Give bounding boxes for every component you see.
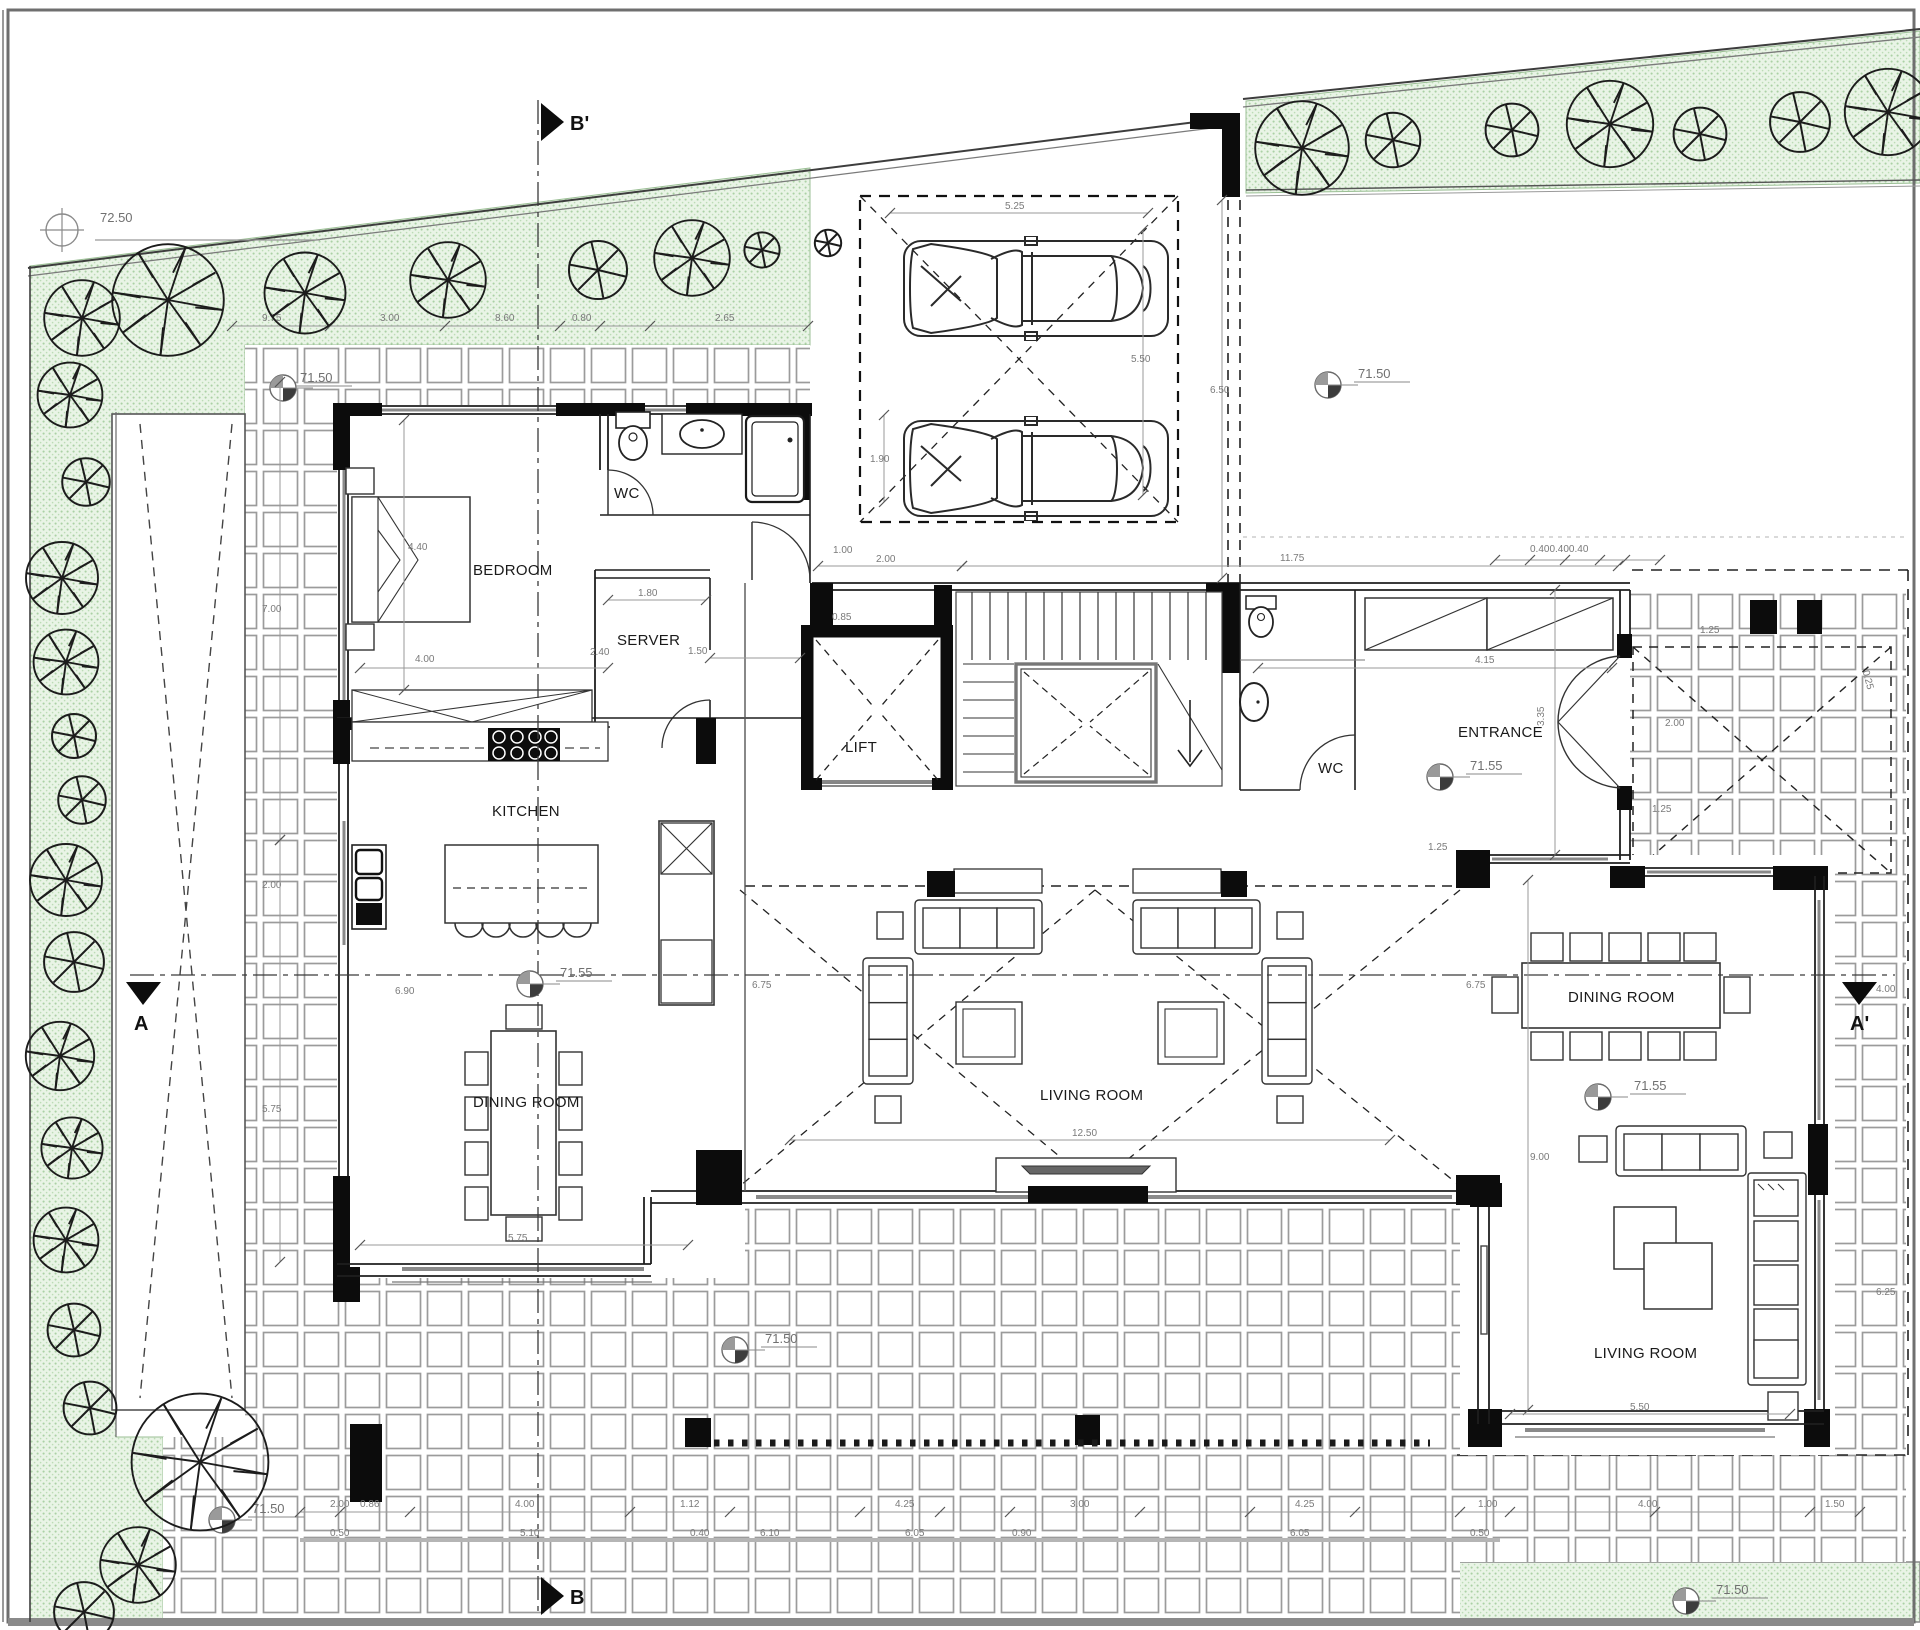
svg-text:1.25: 1.25 [1428,842,1448,853]
svg-text:0.90: 0.90 [1012,1528,1032,1539]
svg-text:BEDROOM: BEDROOM [473,562,553,579]
svg-text:A: A [134,1013,148,1035]
svg-text:12.50: 12.50 [1072,1128,1097,1139]
svg-text:WC: WC [1318,760,1344,777]
svg-text:4.25: 4.25 [1295,1499,1315,1510]
svg-text:1.25: 1.25 [1700,625,1720,636]
svg-text:0.86: 0.86 [360,1499,380,1510]
svg-text:71.50: 71.50 [300,370,333,385]
svg-text:6.90: 6.90 [395,986,415,997]
svg-text:0.85: 0.85 [832,612,852,623]
svg-text:7.00: 7.00 [262,604,282,615]
svg-text:2.65: 2.65 [715,313,735,324]
svg-text:5.25: 5.25 [1005,201,1025,212]
svg-text:71.55: 71.55 [1470,758,1503,773]
svg-text:71.55: 71.55 [560,965,593,980]
svg-text:2.40: 2.40 [590,647,610,658]
svg-text:1.80: 1.80 [638,588,658,599]
svg-text:5.50: 5.50 [1131,354,1151,365]
svg-text:6.05: 6.05 [1290,1528,1310,1539]
svg-text:1.25: 1.25 [1652,804,1672,815]
svg-text:3.35: 3.35 [1536,706,1547,726]
svg-text:6.75: 6.75 [752,980,772,991]
svg-text:72.50: 72.50 [100,210,133,225]
svg-text:4.40: 4.40 [408,542,428,553]
svg-text:1.12: 1.12 [680,1499,700,1510]
svg-text:4.00: 4.00 [415,654,435,665]
svg-text:B': B' [570,113,589,135]
svg-text:2.00: 2.00 [1665,718,1685,729]
svg-text:2.00: 2.00 [876,554,896,565]
svg-text:1.50: 1.50 [688,646,708,657]
svg-text:B: B [570,1587,584,1609]
svg-text:2.00: 2.00 [330,1499,350,1510]
svg-text:71.55: 71.55 [1634,1078,1667,1093]
svg-text:9.00: 9.00 [1530,1152,1550,1163]
svg-text:DINING ROOM: DINING ROOM [1568,989,1675,1006]
svg-text:6.50: 6.50 [1210,385,1230,396]
svg-text:9.75: 9.75 [262,313,282,324]
svg-text:5.10: 5.10 [520,1528,540,1539]
svg-text:1.90: 1.90 [870,454,890,465]
svg-text:5.50: 5.50 [1630,1402,1650,1413]
svg-text:A': A' [1850,1013,1869,1035]
svg-text:0.400.400.40: 0.400.400.40 [1530,544,1589,555]
svg-text:1.00: 1.00 [833,545,853,556]
svg-text:ENTRANCE: ENTRANCE [1458,724,1543,741]
svg-text:8.60: 8.60 [495,313,515,324]
svg-text:LIFT: LIFT [845,739,877,756]
svg-text:71.50: 71.50 [252,1501,285,1516]
svg-text:71.50: 71.50 [1716,1582,1749,1597]
svg-text:6.05: 6.05 [905,1528,925,1539]
svg-text:4.25: 4.25 [895,1499,915,1510]
svg-text:LIVING ROOM: LIVING ROOM [1040,1087,1143,1104]
svg-text:WC: WC [614,485,640,502]
svg-text:4.00: 4.00 [1876,984,1896,995]
svg-text:6.10: 6.10 [760,1528,780,1539]
svg-text:KITCHEN: KITCHEN [492,803,560,820]
svg-text:11.75: 11.75 [1280,553,1305,564]
svg-text:LIVING ROOM: LIVING ROOM [1594,1345,1697,1362]
svg-text:3.00: 3.00 [380,313,400,324]
svg-text:5.75: 5.75 [262,1104,282,1115]
svg-text:0.50: 0.50 [1470,1528,1490,1539]
svg-text:6.25: 6.25 [1876,1287,1896,1298]
svg-text:71.50: 71.50 [765,1331,798,1346]
svg-text:5.75: 5.75 [508,1233,528,1244]
svg-text:0.80: 0.80 [572,313,592,324]
svg-text:4.00: 4.00 [515,1499,535,1510]
svg-text:71.50: 71.50 [1358,366,1391,381]
svg-text:2.00: 2.00 [262,880,282,891]
svg-text:6.75: 6.75 [1466,980,1486,991]
svg-text:0.50: 0.50 [330,1528,350,1539]
svg-text:0.40: 0.40 [690,1528,710,1539]
svg-text:4.00: 4.00 [1638,1499,1658,1510]
svg-text:1.00: 1.00 [1478,1499,1498,1510]
svg-text:3.00: 3.00 [1070,1499,1090,1510]
svg-text:DINING ROOM: DINING ROOM [473,1094,580,1111]
svg-text:4.15: 4.15 [1475,655,1495,666]
svg-text:SERVER: SERVER [617,632,680,649]
svg-text:1.50: 1.50 [1825,1499,1845,1510]
